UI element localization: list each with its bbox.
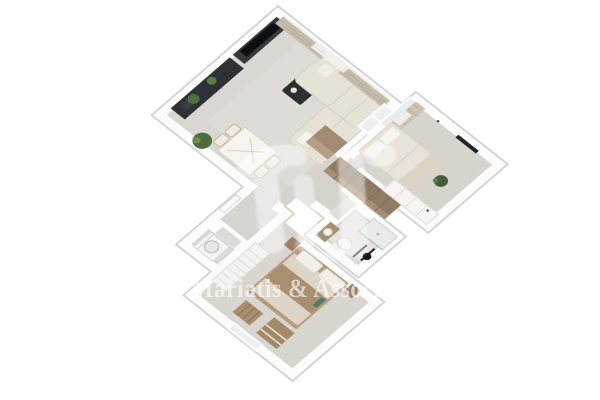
apartment-3d-floor-plan: Mariatis & Associa — [0, 0, 600, 400]
floor-plan-render: Mariatis & Associa — [0, 0, 600, 400]
watermark-text: Mariatis & Associa — [191, 274, 393, 303]
plan-group — [63, 1, 518, 376]
